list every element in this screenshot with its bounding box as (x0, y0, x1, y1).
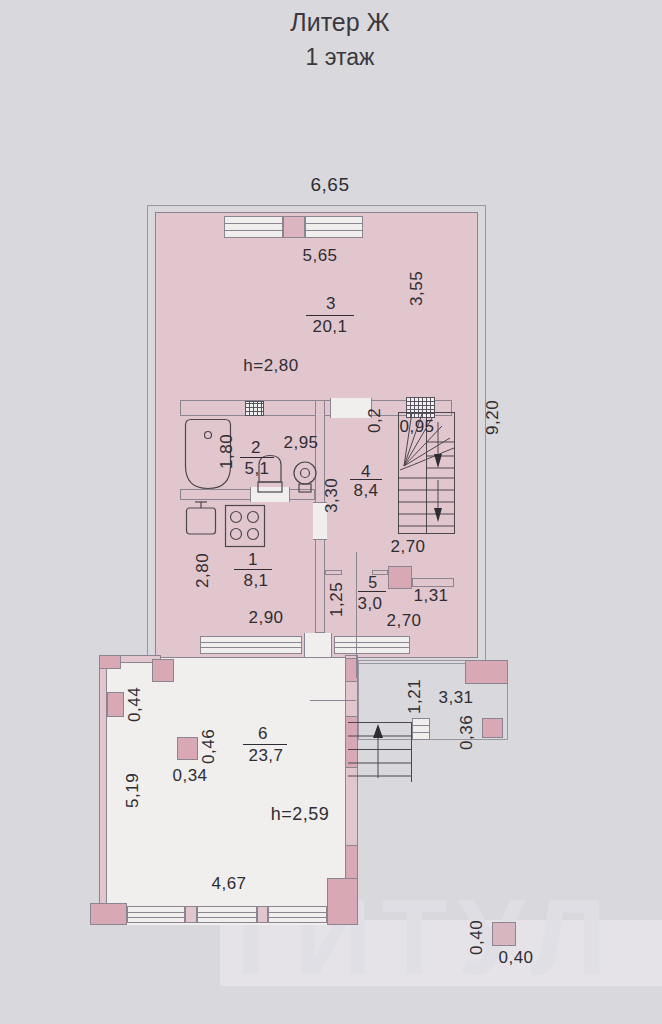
dim-label: 2,95 (278, 433, 324, 453)
room-area: 3,0 (352, 594, 388, 614)
washbasin-icon (290, 458, 320, 494)
dim-label: 1,80 (218, 430, 236, 472)
room-number: 1 (240, 550, 266, 570)
dim-label: 2,70 (378, 611, 430, 631)
dim-label: 2,70 (382, 537, 434, 557)
room-label-line (358, 591, 386, 592)
room-area: 8,1 (234, 571, 278, 591)
room-area: 5,1 (238, 459, 276, 479)
room-label-line (234, 569, 272, 570)
height-label: h=2,80 (233, 356, 309, 376)
dimension-line (356, 552, 357, 678)
dim-label: 1,31 (406, 586, 456, 606)
corner-pier (90, 903, 127, 925)
dim-label: 0,44 (126, 684, 144, 724)
window-mullion (283, 216, 305, 238)
dim-label: 6,65 (295, 174, 365, 196)
window-mullion (257, 906, 268, 923)
window (197, 906, 257, 923)
dim-label: 0,40 (468, 916, 486, 958)
window (334, 636, 410, 654)
window (305, 216, 363, 238)
free-pillar (177, 737, 198, 760)
window (268, 906, 327, 923)
room-number: 2 (238, 438, 274, 458)
dim-label: 3,55 (408, 265, 426, 311)
window-mullion (185, 906, 197, 923)
dim-label: 0,2 (366, 404, 384, 436)
dim-label: 0,40 (488, 948, 544, 968)
door-opening (304, 633, 332, 657)
stove-icon (224, 504, 266, 548)
dim-label: 2,80 (194, 548, 212, 592)
dim-label: 0,36 (458, 713, 476, 751)
dim-label: 9,20 (484, 393, 502, 441)
room-number: 6 (250, 724, 276, 744)
room-label-line (306, 315, 354, 316)
room-area: 23,7 (243, 746, 289, 766)
porch-pillar (465, 660, 508, 684)
room-label-line (240, 457, 274, 458)
dim-label: 4,67 (198, 874, 260, 894)
dim-label: 0,95 (392, 417, 442, 437)
vent-duct-icon (245, 401, 264, 416)
dim-label: 5,65 (285, 246, 355, 266)
wall-segment (99, 655, 107, 925)
dim-label: 1,25 (328, 578, 346, 620)
dim-label: 1,21 (406, 676, 424, 716)
dimension-line (310, 700, 356, 701)
dim-label: 2,90 (240, 608, 292, 628)
floor-plan-page: ТИТУЛ Литер Ж 1 этаж (0, 0, 662, 1024)
wall-pier (107, 692, 124, 717)
room-area: 8,4 (346, 481, 386, 501)
dim-label: 3,31 (430, 688, 482, 708)
arrow-down-icon (434, 454, 442, 468)
porch-pier (412, 718, 430, 740)
wall-segment (325, 570, 342, 575)
entry-steps (348, 722, 412, 782)
window (224, 216, 283, 238)
dim-label: 5,19 (124, 768, 142, 812)
plan-title: Литер Ж (230, 8, 450, 37)
height-label: h=2,59 (258, 804, 342, 825)
plan-subtitle: 1 этаж (230, 44, 450, 71)
wall-pier (152, 659, 174, 682)
dim-label: 0,34 (168, 766, 212, 786)
room-area: 20,1 (306, 317, 354, 337)
window (200, 636, 302, 654)
room-number: 5 (362, 574, 384, 592)
window (127, 906, 185, 923)
arrow-down-icon (434, 508, 442, 522)
corner-pier (327, 878, 358, 925)
wall-pier (99, 655, 121, 669)
arrow-up-icon (373, 724, 383, 738)
free-post (492, 922, 516, 946)
kitchen-sink-icon (184, 500, 218, 538)
porch-pillar (482, 718, 503, 738)
room-label-line (350, 479, 382, 480)
room-number: 3 (314, 294, 348, 314)
dim-label: 0,46 (200, 726, 218, 766)
dim-label: 3,30 (323, 474, 341, 516)
room-label-line (243, 744, 287, 745)
